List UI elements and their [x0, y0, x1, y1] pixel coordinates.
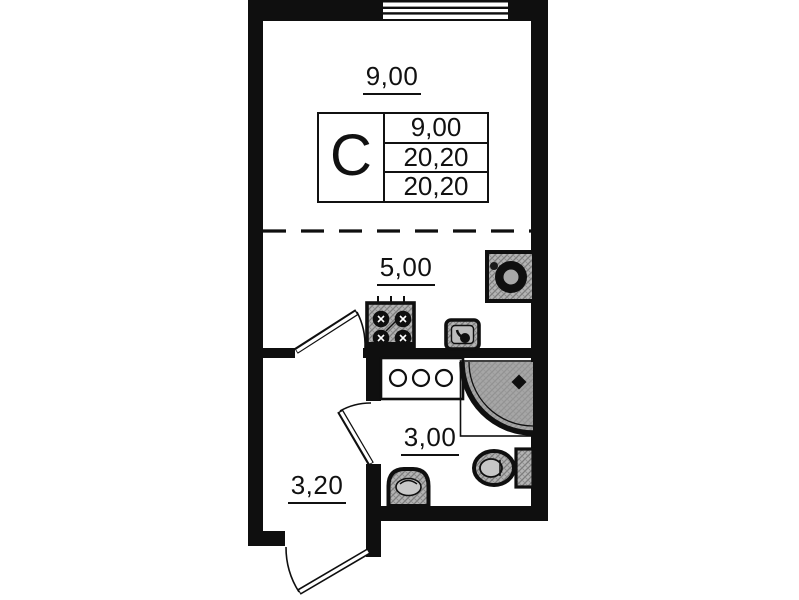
room-label-kitchen: 5,00: [366, 252, 446, 286]
unit-stat-row: 20,20: [385, 144, 487, 174]
unit-stat-row: 20,20: [385, 173, 487, 201]
unit-type-cell: С: [319, 114, 385, 201]
wall-living-stub: [248, 348, 295, 358]
wall-bath-left-upper: [366, 358, 381, 401]
wash-basin-icon: [389, 469, 429, 506]
room-label-hallway: 3,20: [277, 470, 357, 504]
shower-icon: [461, 361, 534, 436]
floor-plan: 9,00 5,00 3,00 3,20 С 9,00 20,20 20,20: [0, 0, 799, 600]
window-icon: [383, 3, 508, 20]
kitchen-sink-icon: [446, 320, 479, 349]
unit-info-table: С 9,00 20,20 20,20: [317, 112, 489, 203]
unit-stats-column: 9,00 20,20 20,20: [385, 114, 487, 201]
wall-hall-bottom-stub: [248, 531, 285, 546]
entry-door-icon: [286, 547, 369, 592]
interior-door-icon: [296, 312, 365, 351]
room-label-living: 9,00: [352, 61, 432, 95]
toilet-icon: [474, 449, 533, 487]
washing-machine-icon: [487, 252, 534, 301]
wall-bath-bottom: [366, 506, 548, 521]
stove-icon: [366, 296, 415, 350]
room-label-bathroom: 3,00: [390, 422, 470, 456]
bathroom-door-icon: [340, 403, 371, 464]
counter-icon: [381, 358, 463, 399]
unit-stat-row: 9,00: [385, 114, 487, 144]
wall-left: [248, 0, 263, 546]
